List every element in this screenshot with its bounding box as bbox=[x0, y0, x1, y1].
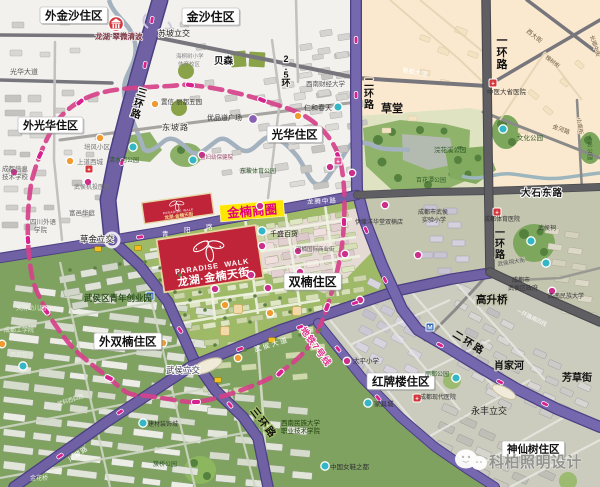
svg-text:成都信息: 成都信息 bbox=[2, 164, 29, 173]
svg-text:+: + bbox=[415, 396, 419, 402]
svg-text:双楠国际商业街: 双楠国际商业街 bbox=[296, 245, 335, 253]
svg-text:外金沙住区: 外金沙住区 bbox=[44, 8, 103, 22]
svg-text:外双楠住区: 外双楠住区 bbox=[98, 334, 157, 348]
svg-text:置信·丽都五园: 置信·丽都五园 bbox=[161, 97, 202, 106]
svg-text:科柏照明设计: 科柏照明设计 bbox=[489, 453, 582, 471]
svg-text:金花桥: 金花桥 bbox=[30, 474, 48, 482]
svg-text:四川外语: 四川外语 bbox=[30, 217, 57, 226]
svg-text:红牌楼住区: 红牌楼住区 bbox=[372, 374, 430, 388]
svg-text:培风小区: 培风小区 bbox=[84, 142, 111, 151]
svg-text:阳: 阳 bbox=[184, 225, 191, 234]
svg-text:武侯区政府: 武侯区政府 bbox=[508, 284, 538, 292]
svg-text:武侯区青年创业园: 武侯区青年创业园 bbox=[84, 293, 152, 303]
svg-text:西部智谷: 西部智谷 bbox=[10, 351, 34, 359]
svg-text:丽都公园: 丽都公园 bbox=[425, 370, 449, 378]
svg-text:建材装饰城: 建材装饰城 bbox=[148, 420, 178, 428]
svg-text:中国女鞋之都: 中国女鞋之都 bbox=[330, 462, 370, 471]
svg-text:东坡路: 东坡路 bbox=[162, 122, 189, 132]
svg-text:一环路: 一环路 bbox=[495, 228, 506, 261]
svg-text:太平小学: 太平小学 bbox=[353, 356, 380, 365]
svg-text:职业技术学院: 职业技术学院 bbox=[281, 426, 321, 435]
svg-text:二环路: 二环路 bbox=[364, 77, 375, 111]
svg-text:人民公园: 人民公园 bbox=[587, 135, 593, 162]
svg-text:仁和春天: 仁和春天 bbox=[304, 103, 332, 112]
svg-text:草金立交: 草金立交 bbox=[80, 234, 115, 244]
svg-text:东坡体育公园: 东坡体育公园 bbox=[240, 167, 276, 175]
svg-text:M: M bbox=[427, 325, 432, 332]
svg-text:芳草街: 芳草街 bbox=[562, 371, 592, 384]
svg-text:海桐树小学: 海桐树小学 bbox=[176, 52, 204, 60]
svg-text:成都工学院: 成都工学院 bbox=[4, 326, 34, 334]
svg-text:武侯祠: 武侯祠 bbox=[538, 224, 556, 232]
svg-text:千盛百货: 千盛百货 bbox=[270, 229, 298, 238]
svg-text:天府幼儿园: 天府幼儿园 bbox=[16, 304, 46, 312]
svg-text:实验小学: 实验小学 bbox=[422, 216, 446, 224]
svg-text:武侯立交: 武侯立交 bbox=[166, 365, 201, 375]
svg-text:上道西城: 上道西城 bbox=[77, 157, 104, 166]
svg-text:金沙住区: 金沙住区 bbox=[186, 9, 235, 24]
svg-text:成都现代医院: 成都现代医院 bbox=[420, 393, 456, 401]
svg-text:+: + bbox=[491, 81, 495, 87]
svg-text:优品道广场: 优品道广场 bbox=[207, 113, 242, 122]
svg-text:草堂: 草堂 bbox=[381, 101, 403, 115]
svg-text:技术学校: 技术学校 bbox=[2, 172, 29, 181]
svg-text:西南民族大学: 西南民族大学 bbox=[548, 292, 584, 300]
svg-text:富邑华庭: 富邑华庭 bbox=[69, 208, 96, 217]
svg-text:簇桥公园: 簇桥公园 bbox=[153, 460, 177, 468]
svg-text:高升桥: 高升桥 bbox=[476, 293, 508, 306]
svg-text:成都市: 成都市 bbox=[512, 276, 530, 284]
svg-text:一环路: 一环路 bbox=[497, 35, 509, 71]
svg-text:肖家河: 肖家河 bbox=[494, 359, 524, 372]
svg-text:西南财经大学: 西南财经大学 bbox=[306, 79, 346, 88]
svg-text:中医大省医院: 中医大省医院 bbox=[487, 87, 527, 96]
svg-text:+: + bbox=[87, 167, 91, 173]
svg-text:青: 青 bbox=[162, 229, 169, 238]
svg-text:苏坡立交: 苏坡立交 bbox=[158, 28, 190, 38]
svg-text:贝森: 贝森 bbox=[214, 55, 234, 67]
svg-text:浣花溪公园: 浣花溪公园 bbox=[434, 145, 467, 154]
svg-text:龙湖·翠微清波: 龙湖·翠微清波 bbox=[95, 31, 143, 41]
svg-text:省妇幼保健院: 省妇幼保健院 bbox=[200, 153, 234, 161]
svg-text:成都市武侯: 成都市武侯 bbox=[418, 208, 448, 216]
svg-text:+: + bbox=[336, 159, 340, 165]
svg-text:+: + bbox=[495, 210, 499, 216]
svg-text:外光华住区: 外光华住区 bbox=[22, 118, 78, 132]
svg-text:大石东路: 大石东路 bbox=[521, 187, 563, 199]
svg-text:路: 路 bbox=[206, 222, 213, 231]
svg-text:武侯机投医院: 武侯机投医院 bbox=[74, 183, 110, 191]
svg-text:光华住区: 光华住区 bbox=[271, 127, 318, 141]
svg-text:光华大道: 光华大道 bbox=[10, 67, 38, 76]
svg-text:清水河公园: 清水河公园 bbox=[109, 156, 139, 164]
svg-text:家具城: 家具城 bbox=[374, 399, 394, 408]
svg-text:伊藤洋华堂双楠店: 伊藤洋华堂双楠店 bbox=[355, 218, 403, 226]
svg-text:百花潭公园: 百花潭公园 bbox=[416, 176, 446, 184]
svg-text:双楠住区: 双楠住区 bbox=[289, 274, 337, 289]
svg-text:西南民族大学: 西南民族大学 bbox=[281, 418, 321, 427]
svg-text:成都体育医院: 成都体育医院 bbox=[484, 215, 520, 223]
svg-text:体育校区: 体育校区 bbox=[178, 60, 201, 68]
svg-text:文化公园: 文化公园 bbox=[517, 133, 543, 142]
svg-text:学院: 学院 bbox=[34, 225, 48, 234]
svg-text:永丰立交: 永丰立交 bbox=[471, 405, 507, 416]
